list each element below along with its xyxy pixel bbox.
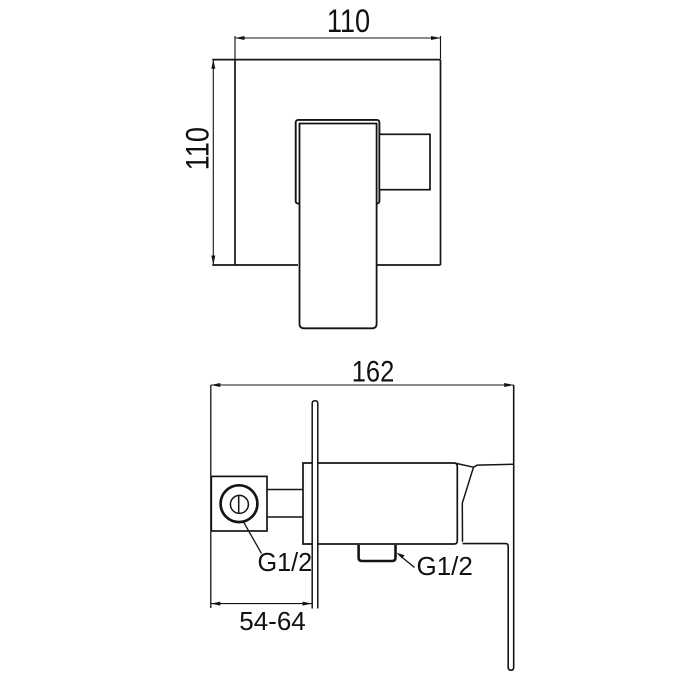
svg-text:110: 110 bbox=[327, 4, 370, 40]
svg-text:54-64: 54-64 bbox=[239, 606, 306, 636]
svg-text:162: 162 bbox=[352, 355, 395, 388]
svg-text:110: 110 bbox=[181, 127, 217, 170]
svg-text:G1/2: G1/2 bbox=[258, 549, 313, 577]
svg-text:G1/2: G1/2 bbox=[417, 551, 473, 581]
